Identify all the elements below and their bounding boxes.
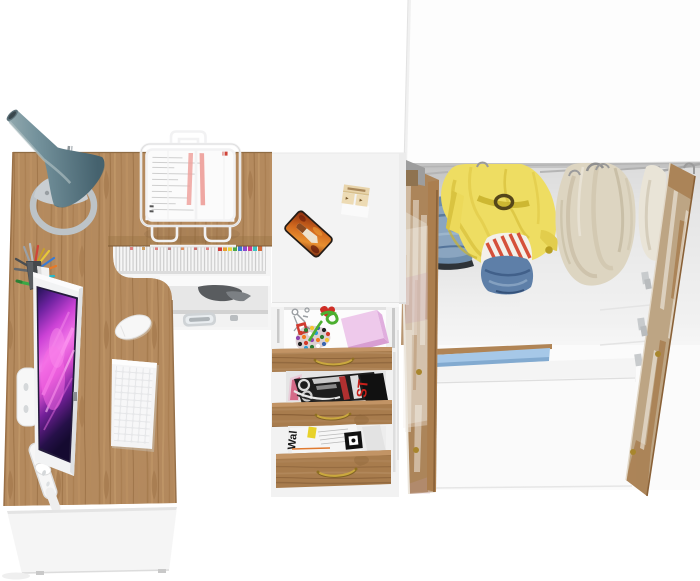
svg-text:ST: ST	[353, 378, 371, 398]
svg-text:Wal: Wal	[286, 430, 300, 450]
